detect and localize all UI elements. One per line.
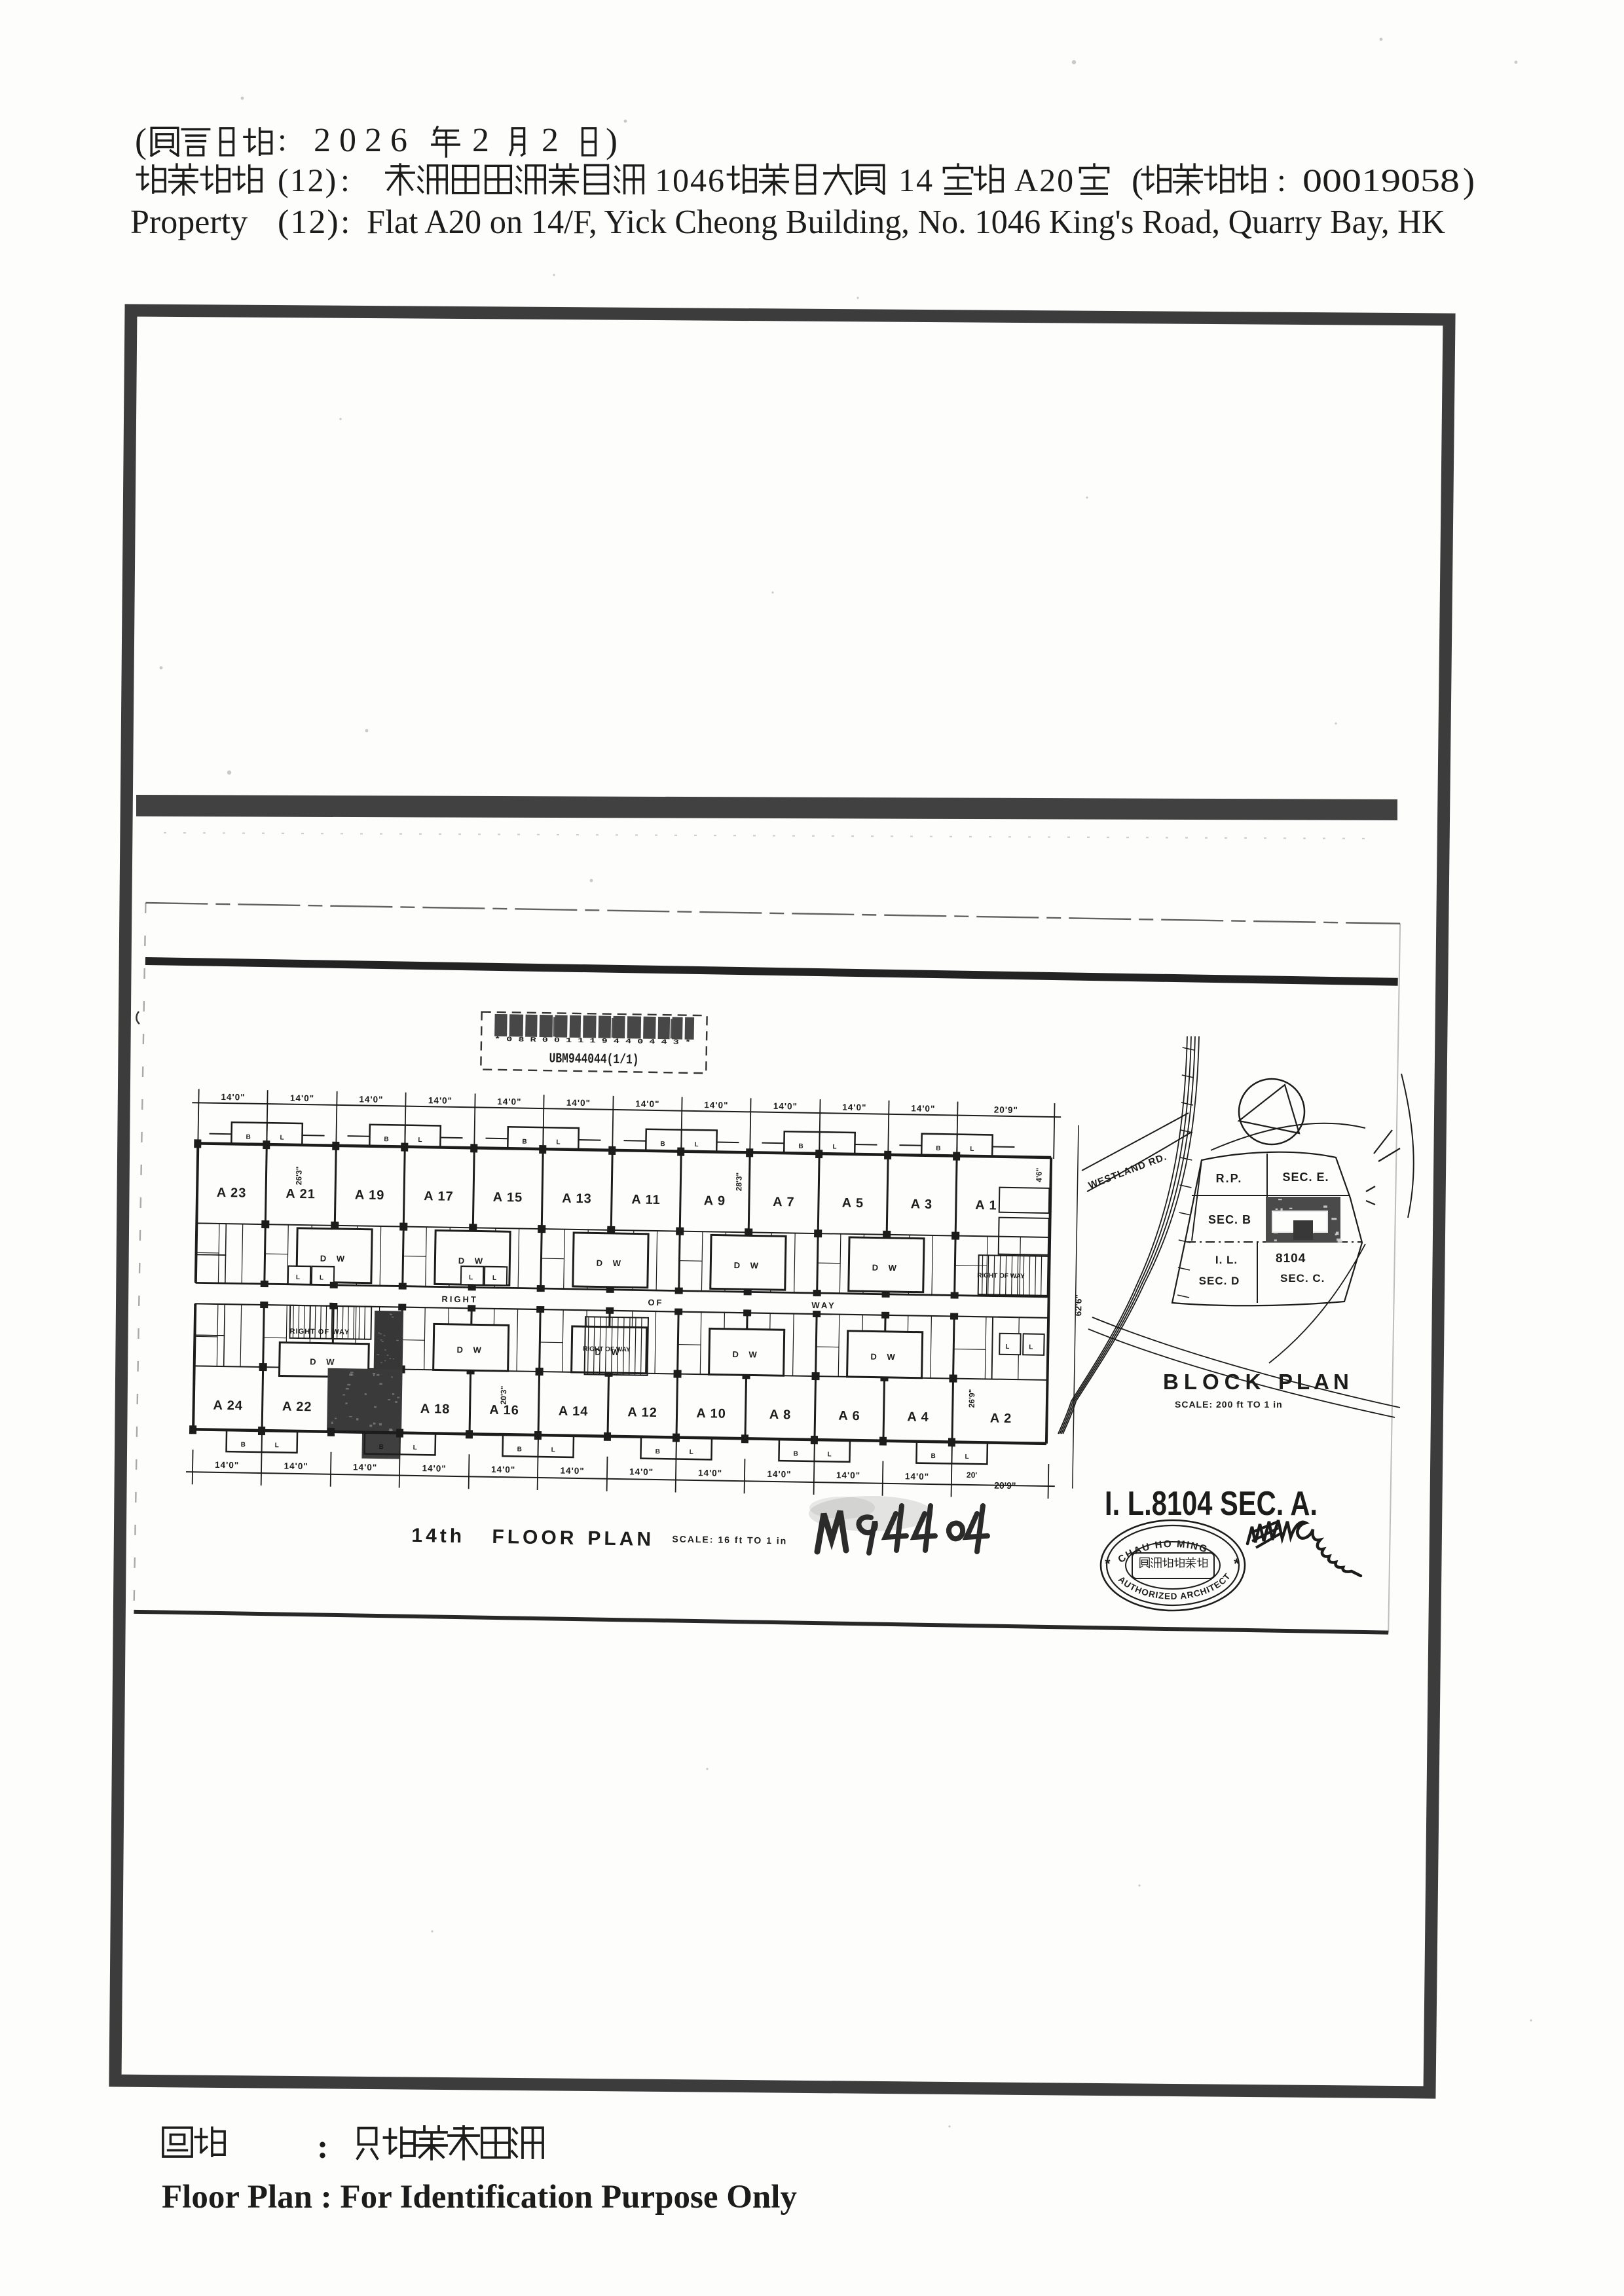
svg-text:A 6: A 6 <box>838 1409 860 1424</box>
svg-text:L: L <box>296 1274 300 1281</box>
svg-text:B: B <box>660 1140 665 1148</box>
svg-text:D W: D W <box>310 1357 339 1367</box>
svg-text:20'9": 20'9" <box>994 1105 1018 1116</box>
svg-text:14'0": 14'0" <box>911 1103 935 1114</box>
svg-text:1046: 1046 <box>655 162 726 198</box>
svg-text:L: L <box>970 1146 974 1153</box>
svg-text:OF: OF <box>648 1298 663 1307</box>
svg-text:L: L <box>832 1143 836 1150</box>
svg-text:14'0": 14'0" <box>842 1102 866 1113</box>
svg-text:14'0": 14'0" <box>767 1469 791 1480</box>
svg-text:D W: D W <box>597 1258 625 1268</box>
svg-text:(: ( <box>1132 161 1143 200</box>
svg-text:(: ( <box>135 121 147 160</box>
svg-text:SCALE: 200 ft TO 1 in: SCALE: 200 ft TO 1 in <box>1175 1399 1283 1410</box>
svg-text:26'3": 26'3" <box>294 1167 303 1186</box>
svg-text:D W: D W <box>456 1345 485 1355</box>
svg-text:WESTLAND RD.: WESTLAND RD. <box>1087 1151 1169 1191</box>
svg-text:SEC. C.: SEC. C. <box>1280 1272 1325 1285</box>
svg-text:B: B <box>798 1143 803 1150</box>
svg-text:B: B <box>936 1145 940 1152</box>
svg-text:A 22: A 22 <box>282 1400 312 1415</box>
svg-text:2: 2 <box>542 122 559 159</box>
svg-text:26'9": 26'9" <box>967 1389 976 1408</box>
svg-text::: : <box>1277 162 1286 198</box>
svg-text:RIGHT OF WAY: RIGHT OF WAY <box>289 1328 350 1337</box>
svg-text::: : <box>317 2128 328 2166</box>
svg-text:00019058: 00019058 <box>1302 162 1460 198</box>
svg-text:20': 20' <box>967 1470 978 1480</box>
svg-text:SEC. E.: SEC. E. <box>1282 1171 1329 1184</box>
svg-text:I. L.8104 SEC. A.: I. L.8104 SEC. A. <box>1105 1485 1318 1523</box>
svg-text:A 12: A 12 <box>627 1405 657 1420</box>
svg-text:FLOOR: FLOOR <box>492 1526 578 1549</box>
svg-text:B: B <box>517 1446 522 1453</box>
svg-text:14'0": 14'0" <box>905 1471 929 1482</box>
svg-text:(12): (12) <box>278 204 340 241</box>
svg-text:A 4: A 4 <box>907 1410 929 1425</box>
svg-text:A 1: A 1 <box>975 1198 997 1213</box>
svg-text:14'0": 14'0" <box>422 1463 446 1474</box>
svg-text:A 8: A 8 <box>769 1408 792 1423</box>
svg-text:Property: Property <box>130 204 248 241</box>
svg-text:B: B <box>241 1442 246 1449</box>
svg-text:SEC. D: SEC. D <box>1199 1275 1240 1287</box>
svg-text:BLOCK: BLOCK <box>1163 1370 1266 1394</box>
svg-text:PLAN: PLAN <box>1278 1370 1353 1394</box>
svg-text:B: B <box>522 1139 526 1146</box>
svg-text:L: L <box>492 1275 496 1282</box>
svg-text:A 3: A 3 <box>911 1197 933 1212</box>
svg-text:B: B <box>379 1444 384 1451</box>
svg-text:A 17: A 17 <box>424 1189 454 1204</box>
svg-text:14'0": 14'0" <box>773 1101 798 1112</box>
svg-text:L: L <box>275 1442 279 1449</box>
svg-text::: : <box>341 162 350 198</box>
svg-text:14'0": 14'0" <box>560 1466 584 1476</box>
svg-text:L: L <box>469 1274 473 1281</box>
svg-text:L: L <box>320 1274 323 1281</box>
svg-text:A20: A20 <box>1014 162 1075 198</box>
svg-text:14: 14 <box>898 162 934 198</box>
svg-text:L: L <box>965 1453 969 1461</box>
svg-text:D W: D W <box>732 1349 761 1360</box>
svg-text:D W: D W <box>872 1262 901 1273</box>
svg-text:A 2: A 2 <box>990 1411 1012 1426</box>
svg-text:62'6": 62'6" <box>1073 1294 1084 1317</box>
svg-text:L: L <box>413 1444 417 1451</box>
svg-text:A 15: A 15 <box>493 1190 523 1205</box>
svg-text:UBM944044(1/1): UBM944044(1/1) <box>549 1051 638 1068</box>
svg-text:14'0": 14'0" <box>704 1100 728 1110</box>
svg-text:B: B <box>246 1134 250 1141</box>
svg-text:A 13: A 13 <box>562 1192 592 1207</box>
svg-text:14'0": 14'0" <box>698 1468 722 1478</box>
svg-text:14'0": 14'0" <box>353 1462 377 1472</box>
svg-text:A 14: A 14 <box>559 1404 589 1419</box>
svg-text:A 18: A 18 <box>420 1402 451 1417</box>
svg-text:4'6": 4'6" <box>1035 1168 1044 1182</box>
svg-text:B: B <box>793 1451 798 1458</box>
svg-text:14'0": 14'0" <box>290 1093 314 1104</box>
svg-text:D W: D W <box>458 1256 487 1266</box>
svg-text:A 5: A 5 <box>842 1196 864 1211</box>
svg-text:A 24: A 24 <box>213 1398 243 1413</box>
svg-text:*: * <box>1234 1556 1240 1572</box>
svg-text:): ) <box>1463 161 1475 200</box>
svg-text:14th: 14th <box>411 1525 465 1547</box>
svg-text:Floor Plan : For Identificatio: Floor Plan : For Identification Purpose … <box>162 2179 797 2215</box>
svg-text:B: B <box>655 1448 660 1455</box>
svg-text:14'0": 14'0" <box>836 1470 860 1481</box>
svg-text:14'0": 14'0" <box>491 1465 515 1475</box>
svg-text:A 11: A 11 <box>631 1192 661 1207</box>
svg-text:L: L <box>827 1451 831 1458</box>
svg-text:): ) <box>606 121 618 160</box>
svg-text:L: L <box>280 1134 284 1141</box>
svg-text:D W: D W <box>870 1351 899 1362</box>
svg-text:SEC. B: SEC. B <box>1208 1213 1251 1226</box>
svg-text:2026: 2026 <box>314 122 416 159</box>
svg-text:14'0": 14'0" <box>284 1461 308 1472</box>
svg-text:B: B <box>931 1453 935 1460</box>
svg-text:28'3": 28'3" <box>734 1173 743 1192</box>
svg-text:L: L <box>1005 1343 1009 1351</box>
svg-text:14'0": 14'0" <box>215 1460 239 1470</box>
svg-text:A 21: A 21 <box>286 1187 316 1202</box>
svg-text:14'0": 14'0" <box>566 1098 591 1108</box>
svg-text:20'3": 20'3" <box>499 1386 508 1405</box>
svg-text:20'9": 20'9" <box>994 1480 1016 1491</box>
svg-text:14'0": 14'0" <box>635 1099 659 1109</box>
svg-text:L: L <box>556 1139 560 1146</box>
svg-text:14'0": 14'0" <box>629 1467 654 1477</box>
svg-text::: : <box>341 204 350 241</box>
svg-text::: : <box>278 121 287 158</box>
svg-text:14'0": 14'0" <box>359 1094 383 1104</box>
svg-text:A 19: A 19 <box>355 1188 385 1203</box>
svg-text:R.P.: R.P. <box>1216 1172 1243 1185</box>
svg-text:L: L <box>418 1137 422 1144</box>
svg-text:SCALE: 16 ft TO 1 in: SCALE: 16 ft TO 1 in <box>672 1533 787 1546</box>
svg-text:*: * <box>1105 1556 1111 1572</box>
svg-text:RIGHT OF WAY: RIGHT OF WAY <box>977 1272 1025 1280</box>
svg-text:PLAN: PLAN <box>587 1527 654 1550</box>
svg-text:A 9: A 9 <box>704 1194 726 1209</box>
svg-text:A 10: A 10 <box>696 1406 726 1421</box>
svg-text:RIGHT OF WAY: RIGHT OF WAY <box>583 1345 631 1353</box>
svg-text:8104: 8104 <box>1276 1252 1306 1266</box>
svg-text:D W: D W <box>320 1253 349 1264</box>
svg-text:WAY: WAY <box>811 1300 836 1311</box>
svg-text:14'0": 14'0" <box>497 1097 521 1107</box>
svg-text:(12): (12) <box>278 162 337 198</box>
svg-text:D W: D W <box>734 1260 763 1271</box>
svg-text:A 7: A 7 <box>773 1195 795 1210</box>
svg-text:14'0": 14'0" <box>221 1092 245 1102</box>
svg-text:RIGHT: RIGHT <box>441 1294 478 1305</box>
svg-text:A 23: A 23 <box>217 1186 247 1201</box>
svg-text:Flat A20 on 14/F, Yick Cheong: Flat A20 on 14/F, Yick Cheong Building, … <box>367 204 1445 241</box>
svg-text:L: L <box>1029 1343 1033 1351</box>
svg-text:B: B <box>384 1136 388 1143</box>
svg-text:2: 2 <box>472 122 489 159</box>
svg-text:14'0": 14'0" <box>428 1095 452 1106</box>
svg-text:L: L <box>551 1446 555 1453</box>
svg-text:L: L <box>694 1141 698 1148</box>
svg-text:L: L <box>690 1449 693 1456</box>
svg-text:I. L.: I. L. <box>1215 1254 1238 1266</box>
